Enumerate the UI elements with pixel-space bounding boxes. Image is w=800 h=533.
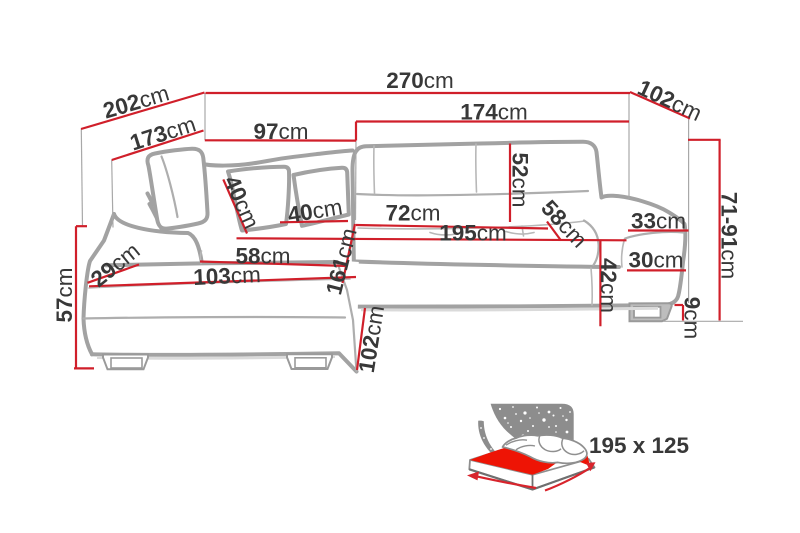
svg-text:97cm: 97cm bbox=[253, 119, 308, 144]
svg-text:33cm: 33cm bbox=[631, 209, 686, 234]
svg-text:195cm: 195cm bbox=[439, 221, 507, 246]
svg-text:52cm: 52cm bbox=[508, 152, 533, 207]
svg-text:57cm: 57cm bbox=[52, 267, 77, 322]
svg-text:174cm: 174cm bbox=[460, 100, 528, 125]
svg-text:9cm: 9cm bbox=[680, 297, 705, 340]
svg-text:30cm: 30cm bbox=[628, 248, 683, 273]
svg-text:270cm: 270cm bbox=[386, 68, 454, 93]
svg-text:42cm: 42cm bbox=[596, 258, 621, 313]
svg-text:195 x 125: 195 x 125 bbox=[589, 433, 689, 458]
svg-text:71-91cm: 71-91cm bbox=[717, 192, 742, 280]
svg-text:103cm: 103cm bbox=[193, 262, 262, 290]
svg-text:72cm: 72cm bbox=[385, 201, 440, 226]
